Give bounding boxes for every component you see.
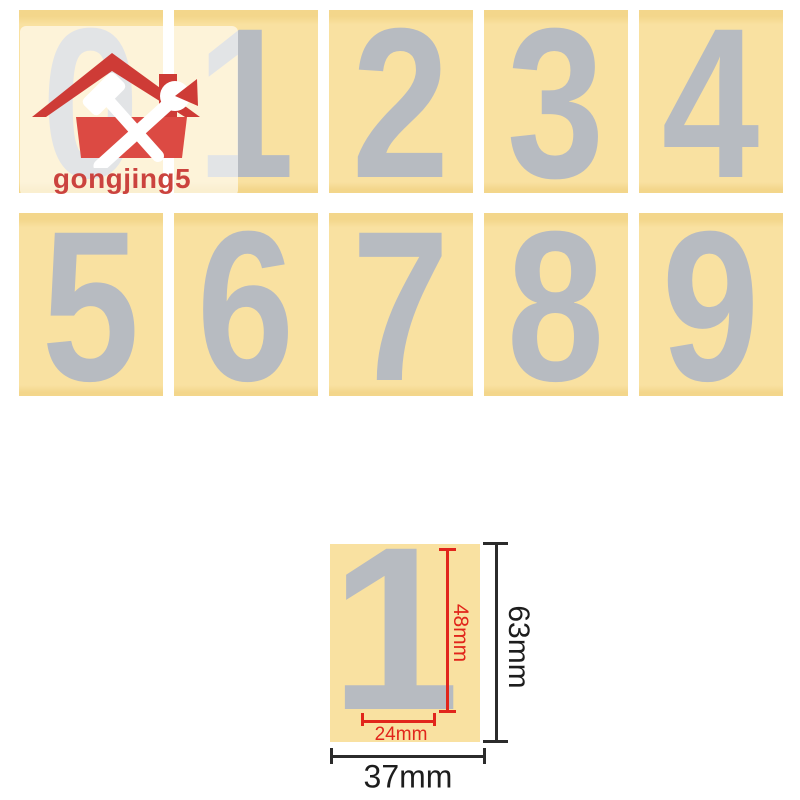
card-height-label: 63mm <box>501 605 535 688</box>
sticker-card: 5 <box>19 213 163 396</box>
dimension-cap <box>330 748 333 764</box>
digit-width-label: 24mm <box>375 724 428 746</box>
sticker-digit: 6 <box>197 200 295 414</box>
card-height-dimension-line <box>495 543 498 743</box>
digit-height-label: 48mm <box>448 604 472 662</box>
sticker-row-bottom: 5 6 7 8 9 <box>19 213 783 396</box>
sticker-card: 7 <box>329 213 473 396</box>
sticker-digit: 8 <box>507 200 605 414</box>
sticker-digit: 7 <box>352 200 450 414</box>
dimension-cap <box>439 710 456 713</box>
sticker-digit: 9 <box>662 200 760 414</box>
sticker-card: 9 <box>639 213 783 396</box>
dimension-cap <box>483 748 486 764</box>
sticker-digit: 3 <box>507 0 605 211</box>
sticker-card: 2 <box>329 10 473 193</box>
sticker-card: 8 <box>484 213 628 396</box>
dimension-cap <box>439 548 456 551</box>
sticker-digit: 5 <box>42 200 140 414</box>
sticker-digit: 4 <box>662 0 760 211</box>
dimension-cap <box>483 740 508 743</box>
sticker-card: 4 <box>639 10 783 193</box>
sticker-card: 3 <box>484 10 628 193</box>
dimension-cap <box>361 713 364 726</box>
watermark-brand-text: gongjing5 <box>42 163 202 195</box>
dimension-cap <box>433 713 436 726</box>
digit-width-dimension-line <box>363 720 436 723</box>
sticker-digit: 2 <box>352 0 450 211</box>
product-image: 0 1 2 3 4 5 6 7 8 9 gongj <box>0 0 800 800</box>
house-tools-logo-icon <box>28 44 204 168</box>
card-width-label: 37mm <box>364 759 453 796</box>
sticker-card: 6 <box>174 213 318 396</box>
dimension-cap <box>483 542 508 545</box>
